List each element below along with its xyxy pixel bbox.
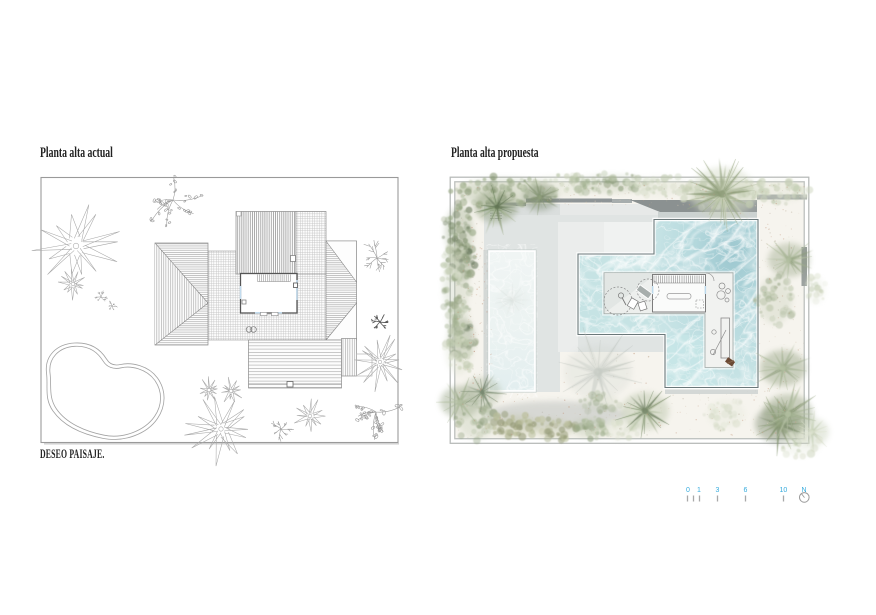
svg-text:1: 1 (697, 487, 701, 494)
svg-text:3: 3 (716, 487, 720, 494)
svg-text:0: 0 (686, 487, 690, 494)
svg-text:10: 10 (780, 487, 788, 494)
svg-text:6: 6 (744, 487, 748, 494)
